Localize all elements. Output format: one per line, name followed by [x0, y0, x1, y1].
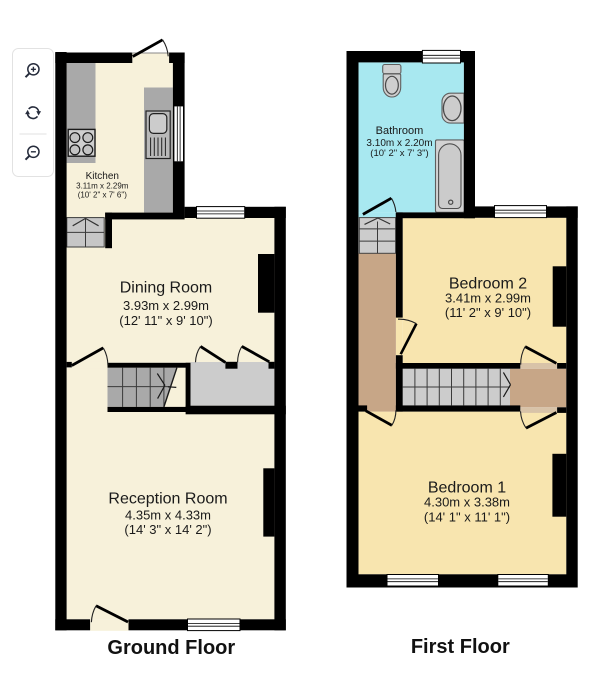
svg-text:(11' 2" x 9' 10"): (11' 2" x 9' 10")	[445, 305, 531, 320]
svg-text:(10' 2" x 7' 3"): (10' 2" x 7' 3")	[370, 148, 428, 159]
svg-text:4.35m x 4.33m: 4.35m x 4.33m	[125, 507, 211, 522]
svg-text:4.30m x 3.38m: 4.30m x 3.38m	[424, 495, 510, 510]
svg-text:Bathroom: Bathroom	[376, 125, 424, 137]
svg-text:(14' 1" x 11' 1"): (14' 1" x 11' 1")	[424, 509, 510, 524]
svg-text:3.93m x 2.99m: 3.93m x 2.99m	[123, 298, 209, 313]
svg-text:Dining Room: Dining Room	[120, 280, 212, 297]
svg-text:Ground Floor: Ground Floor	[107, 637, 235, 659]
svg-text:3.11m x 2.29m: 3.11m x 2.29m	[76, 181, 129, 190]
svg-text:3.41m x 2.99m: 3.41m x 2.99m	[445, 290, 531, 305]
svg-text:Kitchen: Kitchen	[86, 171, 119, 182]
svg-text:First Floor: First Floor	[411, 636, 510, 658]
svg-text:(10' 2" x 7' 6"): (10' 2" x 7' 6")	[78, 190, 128, 199]
svg-text:(12' 11" x 9' 10"): (12' 11" x 9' 10")	[119, 313, 212, 328]
svg-text:(14' 3" x 14' 2"): (14' 3" x 14' 2")	[124, 522, 211, 537]
svg-text:Reception Room: Reception Room	[108, 490, 227, 507]
